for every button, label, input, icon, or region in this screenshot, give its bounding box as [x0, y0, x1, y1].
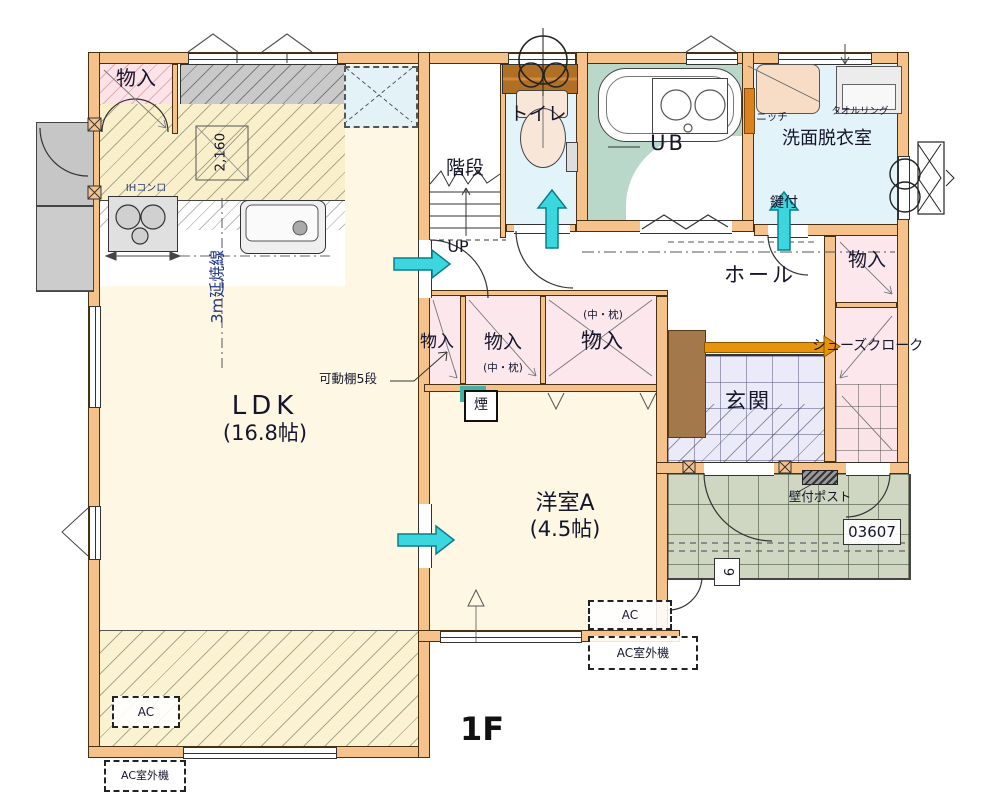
smoke-label: 煙	[474, 398, 488, 413]
wall-bath-washroom	[742, 52, 754, 224]
room-label-storage-a: 物入	[410, 333, 464, 351]
note-wall-post: 壁付ポスト	[778, 490, 862, 504]
ceiling-hatch-box	[344, 66, 418, 128]
note-fire-spread-line: 3m延焼線	[208, 227, 225, 347]
room-size-ldk: (16.8帖)	[198, 422, 332, 445]
room-label-ldk: LDK	[205, 392, 325, 420]
ac-outdoor-ldk: AC室外機	[104, 760, 186, 792]
bathtub-apron	[652, 78, 728, 134]
exterior-storage-upper	[36, 122, 94, 206]
ac-label: AC	[138, 706, 154, 719]
note-up: UP	[438, 238, 478, 255]
note-movable-shelf: 可動棚5段	[304, 372, 392, 386]
plan-number-box: 03607	[843, 519, 901, 545]
window-bath-north	[686, 53, 738, 65]
opening-front-door	[704, 462, 774, 476]
opening-washroom-door	[768, 224, 808, 238]
opening-bath-door	[640, 220, 732, 234]
note-naka-makura-c: (中・枕)	[566, 310, 640, 321]
room-label-bath: UB	[642, 132, 694, 155]
room-label-storage-b: 物入	[466, 332, 540, 353]
ih-stove	[108, 196, 178, 252]
note-towel-ring: タオルリング	[828, 107, 892, 117]
note-lock: 鍵付	[758, 196, 810, 211]
floor-label: 1F	[452, 712, 512, 747]
room-label-hall: ホール	[700, 264, 820, 287]
room-label-toilet: トイレ	[496, 104, 580, 125]
window-ldk-west	[89, 306, 101, 408]
room-label-washroom: 洗面脱衣室	[757, 129, 897, 148]
shoes-cloak-lower	[836, 384, 897, 462]
stair-treads	[430, 169, 506, 240]
kitchen-sink	[240, 200, 326, 254]
exterior-storage-lower	[36, 206, 94, 292]
ldk-south-hatch	[100, 630, 418, 747]
ac-label: AC	[622, 609, 638, 622]
wall-closet-div2	[540, 296, 546, 384]
note-naka-makura-b: (中・枕)	[466, 363, 540, 374]
note-niche: ニッチ	[754, 112, 790, 123]
laundry-pan	[756, 64, 820, 114]
ac-outdoor-label: AC室外機	[121, 770, 169, 782]
ac-outdoor-label: AC室外機	[617, 647, 669, 660]
roof-chevrons	[188, 34, 736, 52]
dim-2160: 2,160	[214, 122, 229, 182]
window-ldk-south	[183, 747, 337, 759]
room-label-storage-c: 物入	[560, 330, 644, 353]
room-label-western-a: 洋室A	[505, 492, 625, 516]
smoke-detector-box: 煙	[464, 390, 498, 422]
wall-closet-divider-right	[836, 302, 897, 308]
window-westernA-south	[440, 631, 582, 643]
opening-toilet-door	[514, 224, 570, 234]
room-label-storage-right: 物入	[838, 250, 896, 271]
room-label-shoes-cloak: シューズクローク	[812, 339, 942, 354]
niche	[744, 88, 755, 134]
handrail	[704, 342, 826, 353]
opening-ldk-westernA	[418, 504, 432, 568]
ac-unit-ldk: AC	[112, 696, 180, 728]
room-label-entrance: 玄関	[706, 390, 790, 413]
toilet-paper-holder	[566, 142, 578, 172]
floor-plan-1f: 03607 9 煙	[0, 0, 1000, 800]
room-label-stairs: 階段	[430, 158, 500, 179]
opening-cloak-door	[846, 462, 890, 476]
porch-step-notch: 9	[714, 558, 740, 586]
casement-window-icon	[62, 508, 88, 556]
note-ih-stove: IHコンロ	[114, 184, 178, 195]
wall-east	[897, 52, 909, 474]
window-kitchen-north	[188, 53, 338, 65]
shoe-cabinet	[668, 330, 706, 438]
step-number: 9	[720, 568, 734, 576]
ac-unit-western-a: AC	[588, 600, 672, 630]
room-label-storage-tl: 物入	[104, 68, 168, 90]
window-ldk-west-casement	[89, 506, 101, 560]
wall-mailbox	[802, 470, 838, 485]
window-washroom-fan	[898, 156, 910, 220]
kitchen-wall-cabinet	[180, 64, 346, 109]
wall-closetTL-side	[172, 64, 178, 134]
ac-outdoor-western-a: AC室外機	[588, 636, 698, 670]
wall-spine	[418, 52, 430, 758]
opening-ldk-corridor	[418, 240, 432, 298]
plan-number: 03607	[848, 524, 896, 540]
room-size-western-a: (4.5帖)	[498, 518, 632, 541]
